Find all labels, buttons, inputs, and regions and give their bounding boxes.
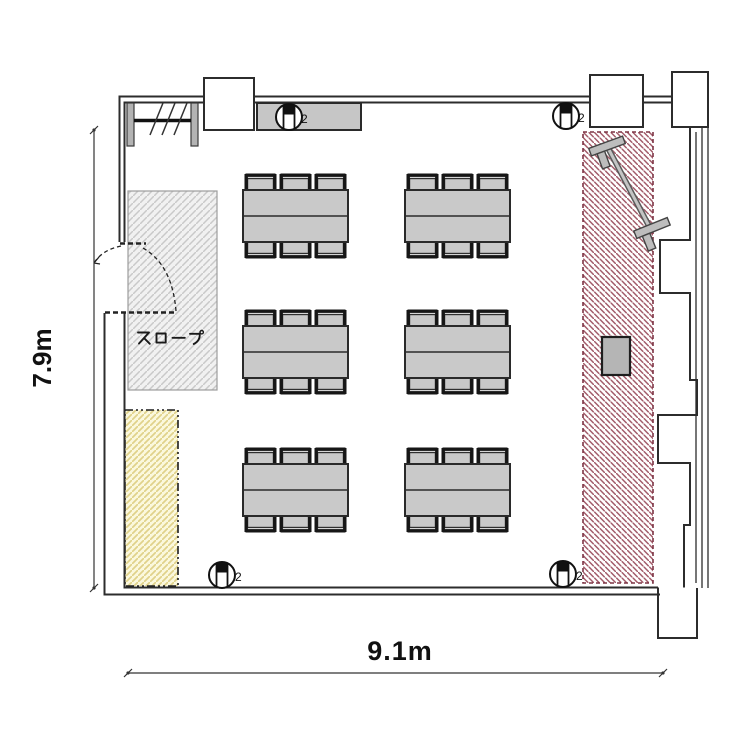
height-dimension-label: 7.9m [28, 318, 56, 398]
curtain-wall-glazing [696, 127, 708, 588]
window-post-right [191, 103, 198, 146]
table-group [243, 174, 348, 259]
fixture-icon [276, 104, 302, 130]
fixture-count-label: 2 [235, 570, 251, 584]
table-group [405, 310, 510, 395]
width-dimension-label: 9.1m [327, 636, 473, 666]
door-swing-arc-small [94, 246, 121, 263]
wall-column-top-right [672, 72, 708, 127]
fixture-icon [209, 562, 235, 588]
window-post-left [127, 103, 134, 146]
wall-alcove-top-right [590, 75, 643, 127]
table-group [405, 174, 510, 259]
floor-plan: 7.9m 9.1m スロープ 2 2 2 2 [0, 0, 750, 750]
table-group [405, 448, 510, 533]
fixture-count-label: 2 [301, 112, 317, 126]
fixture-icon [553, 103, 579, 129]
wall-right-stepped [658, 127, 697, 588]
table-group [243, 448, 348, 533]
podium [602, 337, 630, 375]
wall-bottom-right-extension [658, 588, 697, 639]
wall-alcove-top-center [204, 78, 254, 130]
table-group [243, 310, 348, 395]
fixture-count-label: 2 [576, 569, 592, 583]
window-top-left [127, 103, 198, 146]
storage-zone-yellow [125, 410, 178, 586]
tables [243, 174, 510, 533]
slope-area [128, 191, 217, 390]
slope-label: スロープ [134, 327, 220, 347]
fixture-icon [550, 561, 576, 587]
fixture-count-label: 2 [578, 111, 594, 125]
